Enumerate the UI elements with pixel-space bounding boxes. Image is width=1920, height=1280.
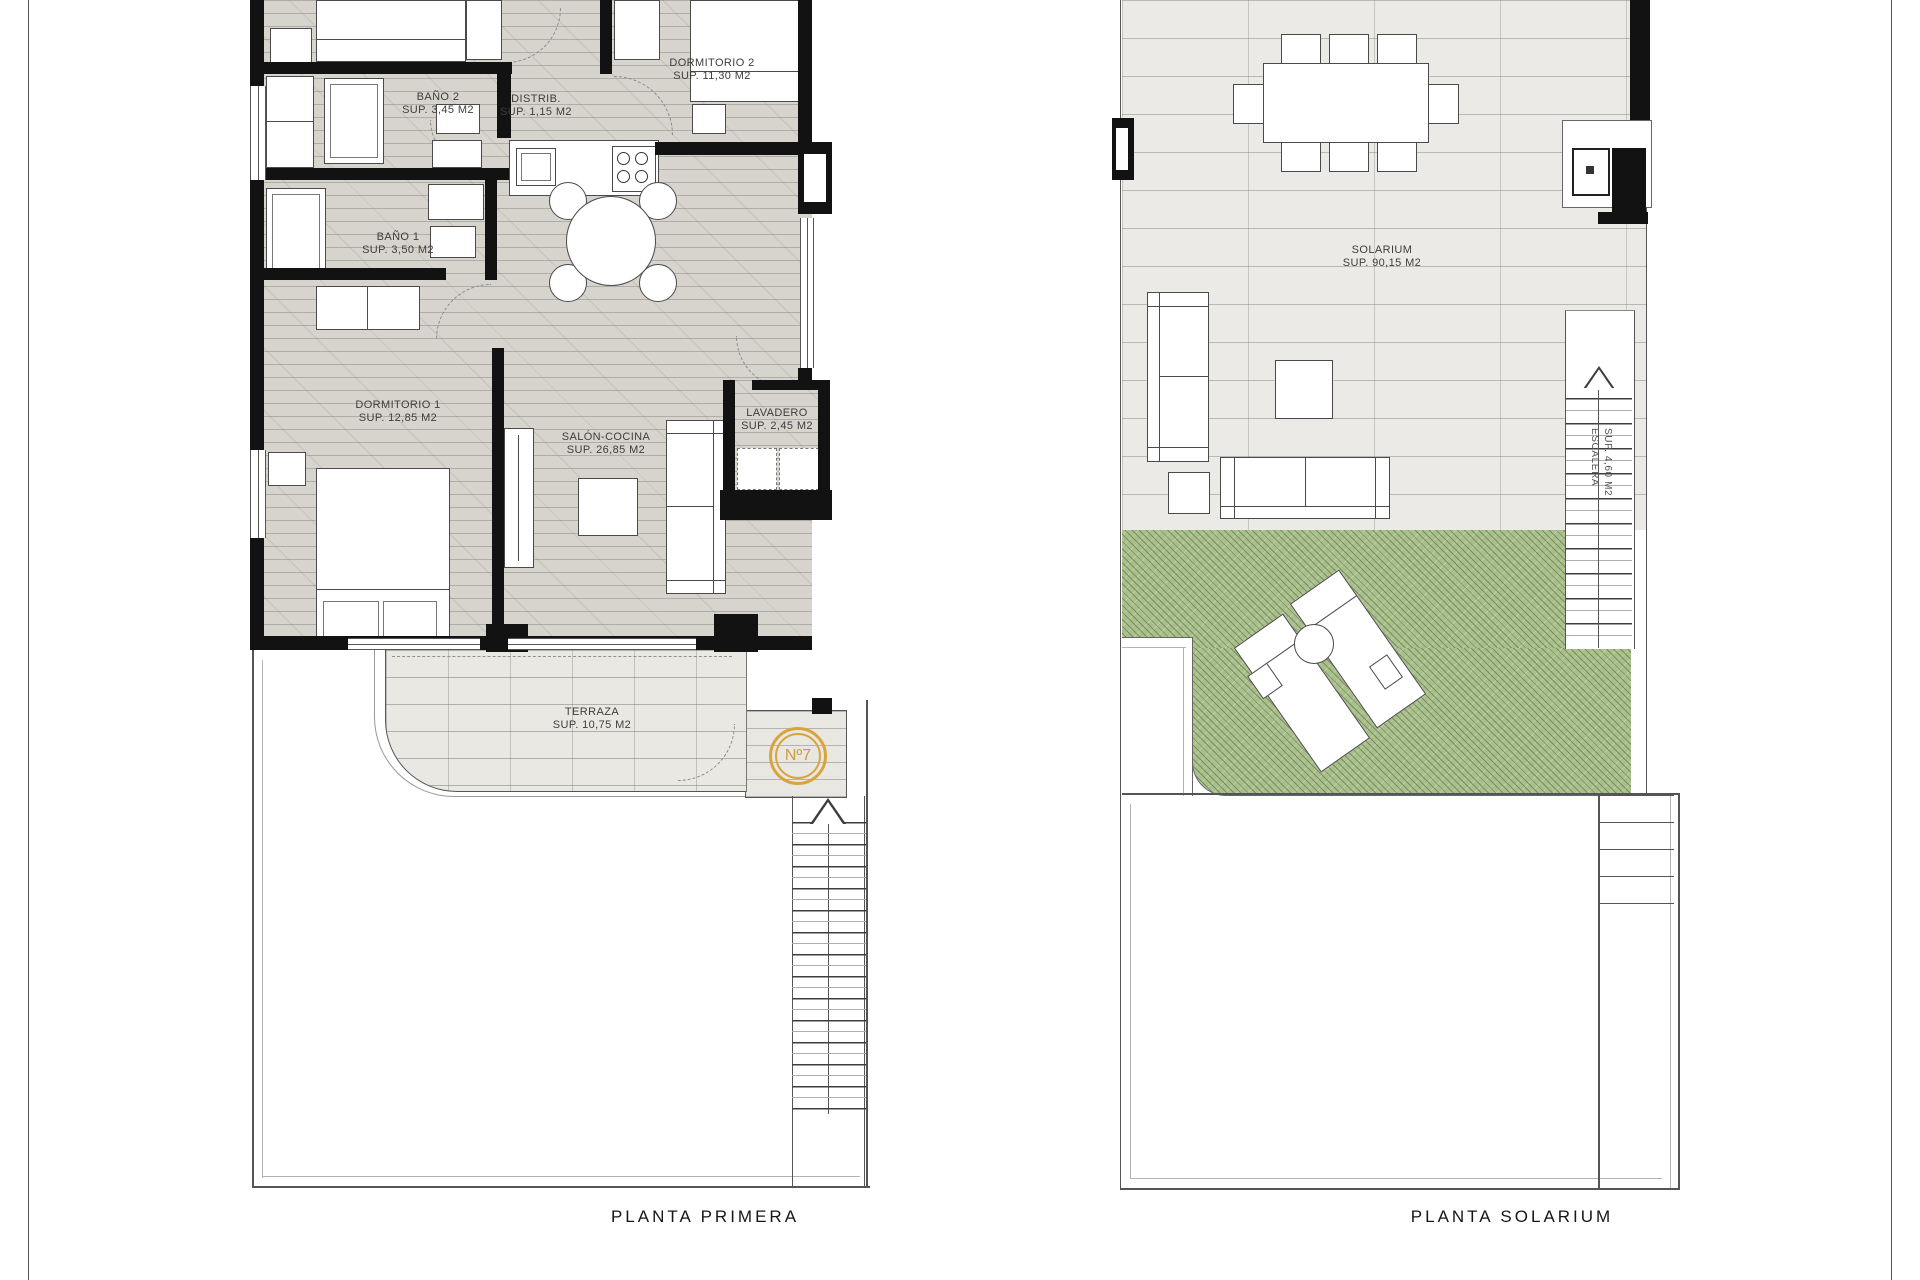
stairs [1600, 795, 1674, 929]
pillar [714, 614, 758, 652]
sliding-window [508, 638, 696, 650]
wall [752, 380, 818, 390]
stairs [792, 822, 866, 1114]
patio-chair [1281, 34, 1321, 66]
plot-boundary [252, 1186, 870, 1188]
plot-boundary-inner [1130, 1178, 1662, 1179]
wall [723, 380, 735, 492]
terrace-dashed-line [392, 656, 732, 657]
wall [485, 180, 497, 280]
washbasin [432, 140, 482, 168]
coffee-table [578, 478, 638, 536]
wall [1598, 212, 1648, 224]
unit-number-badge: Nº7 [769, 727, 827, 785]
plot-boundary [1122, 793, 1680, 795]
shower [266, 188, 326, 276]
room-label-salon-cocina: SALÓN-COCINASUP. 26,85 M2 [562, 431, 651, 457]
wall [1630, 0, 1650, 120]
patio-dining-table [1263, 63, 1429, 143]
pillow [383, 601, 437, 637]
room-label-bano-2: BAÑO 2SUP. 3,45 M2 [402, 91, 474, 117]
kitchen-sink [516, 148, 556, 186]
room-label-terraza: TERRAZASUP. 10,75 M2 [553, 706, 631, 732]
pillow [323, 601, 379, 637]
wall-niche [804, 154, 826, 202]
nightstand [692, 104, 726, 134]
room-label-dormitorio-1: DORMITORIO 1SUP. 12,85 M2 [355, 399, 440, 425]
patio-chair [1377, 140, 1417, 172]
wardrobe [466, 0, 502, 60]
sofa [1147, 292, 1209, 462]
patio-chair [1233, 84, 1265, 124]
toilet [430, 226, 476, 258]
room-label-bano-1: BAÑO 1SUP. 3,50 M2 [362, 231, 434, 257]
sofa [666, 420, 726, 594]
bed [690, 0, 800, 102]
dryer [779, 448, 819, 490]
coffee-table [1275, 360, 1333, 419]
wall [250, 62, 512, 74]
patio-chair [1329, 140, 1369, 172]
sheet-right-border [1891, 0, 1892, 1280]
wall [250, 268, 446, 280]
room-label-distribuidor: DISTRIB.SUP. 1,15 M2 [500, 93, 572, 119]
washbasin [428, 184, 484, 220]
wall [818, 380, 830, 492]
patio-chair [1281, 140, 1321, 172]
plot-boundary-inner [1130, 804, 1131, 1178]
sheet-left-border [28, 0, 29, 1280]
nightstand [268, 452, 306, 486]
plot-boundary-inner [262, 1176, 860, 1177]
sofa [1220, 457, 1390, 519]
stairs-up-arrow [810, 798, 846, 824]
plot-boundary [1120, 1188, 1680, 1190]
badge-label: Nº7 [772, 730, 824, 782]
plot-boundary [1678, 793, 1680, 1190]
dining-table [566, 196, 656, 286]
room-label-solarium: SOLARIUMSUP. 90,15 M2 [1343, 244, 1421, 270]
room-label-escalera: ESCALERASUP. 4,60 M2 [1588, 428, 1614, 496]
bed [316, 0, 466, 62]
wall [812, 698, 832, 714]
wardrobe [614, 0, 660, 60]
room-label-dormitorio-2: DORMITORIO 2SUP. 11,30 M2 [669, 57, 754, 83]
round-table [1294, 624, 1334, 664]
wall [798, 0, 812, 142]
water-heater [1572, 148, 1610, 196]
patio-chair [1427, 84, 1459, 124]
wall [720, 490, 832, 520]
bed [316, 468, 450, 650]
patio-chair [1329, 34, 1369, 66]
shower [324, 78, 384, 164]
wardrobe [316, 286, 420, 330]
patio-chair [1377, 34, 1417, 66]
window [800, 218, 814, 368]
wall [492, 348, 504, 648]
room-label-lavadero: LAVADEROSUP. 2,45 M2 [741, 407, 813, 433]
patio-notch [1122, 637, 1193, 796]
floor-plan-sheet: DORMITORIO 2SUP. 11,30 M2 BAÑO 2SUP. 3,4… [0, 0, 1920, 1280]
caption-planta-primera: PLANTA PRIMERA [611, 1207, 799, 1227]
caption-planta-solarium: PLANTA SOLARIUM [1411, 1207, 1613, 1227]
tv-cabinet [504, 428, 534, 568]
plot-boundary-inner [262, 660, 263, 1178]
plot-boundary [252, 650, 254, 1188]
side-table [1168, 472, 1210, 514]
pillar-niche [1116, 128, 1128, 170]
bathroom-cabinet [266, 76, 314, 168]
stairs-up-arrow [1584, 366, 1615, 388]
washer [737, 448, 777, 490]
plot-boundary [866, 700, 868, 1188]
wall [600, 0, 612, 74]
wall [250, 168, 509, 180]
window [250, 450, 266, 538]
window [250, 86, 266, 180]
nightstand [270, 28, 312, 64]
sliding-window [348, 638, 480, 650]
wall [655, 142, 812, 155]
wall [1612, 148, 1646, 214]
